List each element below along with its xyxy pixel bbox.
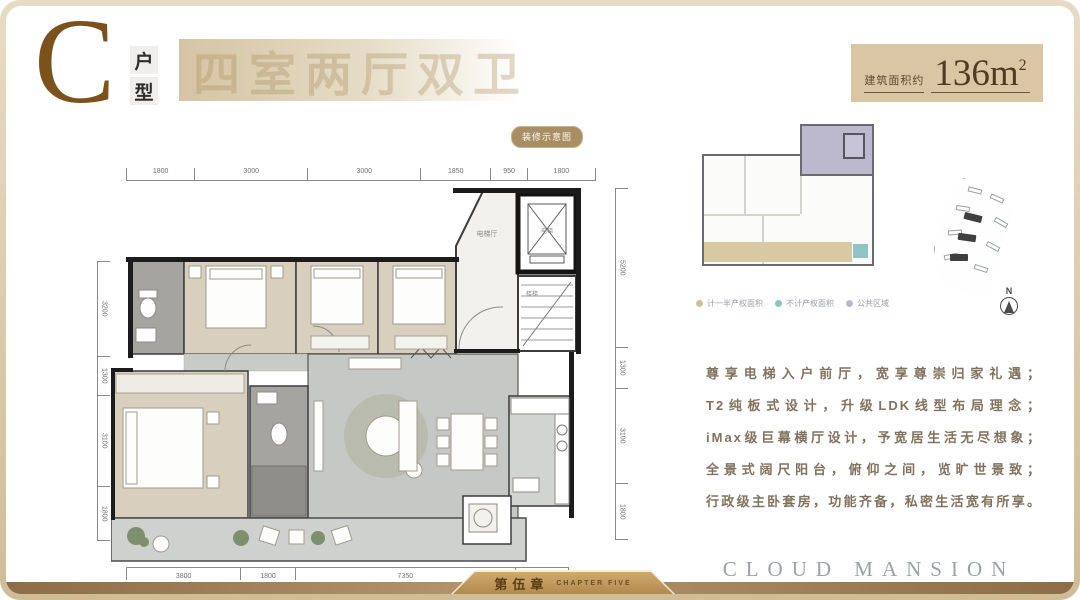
- chapter-title-en: CHAPTER FIVE: [556, 580, 631, 587]
- legend-label: 不计产权面积: [786, 298, 834, 309]
- unit-type-label: 户 型: [130, 46, 158, 105]
- key-plan: [696, 124, 886, 296]
- elevator-hall-label: 电梯厅: [477, 229, 498, 238]
- elevator-label: 电梯: [541, 227, 553, 235]
- unit-type-char-2: 型: [130, 77, 158, 105]
- dimension-value: 3000: [194, 168, 307, 181]
- dimension-right: 5200130031001800: [615, 188, 628, 540]
- description-line: T2纯板式设计，升级LDK线型布局理念；: [706, 390, 1042, 422]
- legend: 计一半产权面积 不计产权面积 公共区域: [696, 298, 889, 309]
- layout-card: C 户 型 四室两厅双卫 建筑面积约 136m2 装修示意图 180030003…: [6, 6, 1074, 594]
- dimension-value: 1800: [97, 486, 110, 541]
- legend-dot: [775, 300, 782, 307]
- legend-dot: [846, 300, 853, 307]
- compass-icon: N: [996, 286, 1022, 315]
- dimension-left: 3200130031001800: [97, 261, 110, 541]
- dimension-value: 3000: [307, 168, 420, 181]
- area-box: 建筑面积约 136m2: [851, 44, 1043, 102]
- dimension-value: 1850: [420, 168, 490, 181]
- area-value: 136m2: [931, 59, 1029, 93]
- toilet-icon: [271, 423, 287, 445]
- bed-icon: [393, 266, 445, 324]
- area-superscript: 2: [1019, 57, 1027, 74]
- dimension-value: 5200: [615, 188, 628, 347]
- laundry-icon: [463, 496, 511, 544]
- tv-cabinet-icon: [314, 401, 323, 471]
- unit-type-char-1: 户: [130, 46, 158, 74]
- wardrobe-icon: [116, 374, 244, 393]
- dimension-value: 950: [490, 168, 526, 181]
- floorplan-drawing: 电梯厅 电梯 楼梯: [111, 186, 581, 566]
- dimension-value: 3800: [126, 567, 240, 580]
- legend-label: 计一半产权面积: [707, 298, 763, 309]
- highlighted-building-icon: [950, 254, 968, 261]
- corridor: [184, 354, 308, 371]
- sink-icon: [257, 392, 277, 404]
- dimension-value: 1800: [615, 483, 628, 540]
- dimension-value: 1300: [615, 347, 628, 388]
- key-plan-noncounted-area: [853, 244, 868, 258]
- dimension-value: 3200: [97, 261, 110, 356]
- shower-icon: [252, 466, 306, 516]
- legend-dot: [696, 300, 703, 307]
- headline-text: 四室两厅双卫: [193, 39, 519, 101]
- stairs-label: 楼梯: [526, 290, 538, 298]
- key-plan-elevator: [843, 133, 865, 159]
- dimension-value: 3100: [97, 395, 110, 487]
- dimension-value: 1800: [240, 567, 295, 580]
- dining-table-icon: [437, 414, 497, 470]
- stairs-icon: [518, 276, 576, 351]
- area-label: 建筑面积约: [864, 72, 924, 93]
- description-block: 尊享电梯入户前厅，宽享尊崇归家礼遇；T2纯板式设计，升级LDK线型布局理念；iM…: [706, 358, 1042, 518]
- dimension-value: 1800: [527, 168, 596, 181]
- page-frame: C 户 型 四室两厅双卫 建筑面积约 136m2 装修示意图 180030003…: [0, 0, 1080, 600]
- floorplan-area: 18003000300018509501800 3800180073501750…: [91, 156, 651, 591]
- chapter-ribbon: 第伍章 CHAPTER FIVE: [451, 570, 675, 594]
- dimension-value: 3100: [615, 388, 628, 483]
- compass-north-label: N: [996, 286, 1022, 296]
- dimension-value: 1300: [97, 356, 110, 395]
- chapter-title-cn: 第伍章: [494, 574, 548, 593]
- wardrobe-icon: [395, 336, 447, 349]
- description-line: 行政级主卧套房，功能齐备，私密生活宽有所享。: [706, 486, 1042, 518]
- legend-item: 不计产权面积: [775, 298, 834, 309]
- bed-icon: [311, 266, 363, 324]
- legend-label: 公共区域: [857, 298, 889, 309]
- description-line: iMax级巨幕横厅设计，予宽居生活无尽想象；: [706, 422, 1042, 454]
- unit-letter: C: [34, 6, 115, 132]
- dimension-top: 18003000300018509501800: [126, 168, 596, 181]
- legend-item: 公共区域: [846, 298, 889, 309]
- key-plan-balcony-area: [704, 242, 852, 262]
- description-line: 尊享电梯入户前厅，宽享尊崇归家礼遇；: [706, 358, 1042, 390]
- key-plan-public-area: [800, 124, 874, 176]
- legend-item: 计一半产权面积: [696, 298, 763, 309]
- wardrobe-icon: [311, 336, 369, 349]
- decoration-note-badge: 装修示意图: [511, 126, 583, 148]
- dimension-value: 1800: [126, 168, 194, 181]
- sofa-icon: [399, 401, 417, 471]
- side-table-icon: [153, 536, 169, 552]
- console-icon: [349, 358, 401, 369]
- brand-wordmark: CLOUD MANSION: [696, 557, 1042, 582]
- toilet-icon: [139, 290, 157, 318]
- sink-icon: [136, 328, 156, 342]
- description-line: 全景式阔尺阳台，俯仰之间，览旷世景致；: [706, 454, 1042, 486]
- headline-band: 四室两厅双卫: [179, 39, 519, 101]
